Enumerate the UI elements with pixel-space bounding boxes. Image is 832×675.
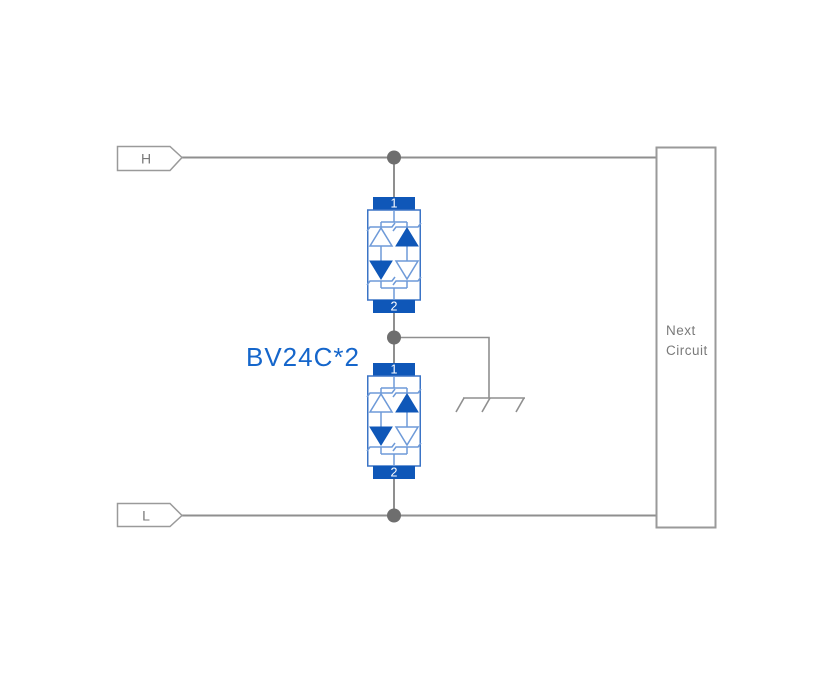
tvs-component-bottom: 1 2 <box>367 363 421 480</box>
component-label: BV24C*2 <box>246 342 360 372</box>
l-tag-label: L <box>142 508 150 524</box>
junction-dot-top <box>387 151 401 165</box>
ground-tick-middle <box>482 398 490 412</box>
pin2-label: 2 <box>391 466 398 480</box>
ground-tick-right <box>516 398 524 412</box>
junction-dot-middle <box>387 331 401 345</box>
next-circuit-label-line1: Next <box>666 323 696 338</box>
tvs-component-top: 1 2 <box>367 197 421 314</box>
pin1-label: 1 <box>391 363 398 377</box>
ground-icon <box>456 398 525 412</box>
circuit-diagram: H L Next Circuit 1 2 <box>0 0 832 675</box>
h-tag: H <box>118 147 183 171</box>
next-circuit-label-line2: Circuit <box>666 343 708 358</box>
circuit-canvas: H L Next Circuit 1 2 <box>0 0 832 675</box>
l-tag: L <box>118 504 183 527</box>
next-circuit-box: Next Circuit <box>657 148 716 528</box>
h-tag-label: H <box>141 151 151 167</box>
pin1-label: 1 <box>391 197 398 211</box>
ground-tick-left <box>456 398 464 412</box>
pin2-label: 2 <box>391 300 398 314</box>
junction-dot-bottom <box>387 509 401 523</box>
